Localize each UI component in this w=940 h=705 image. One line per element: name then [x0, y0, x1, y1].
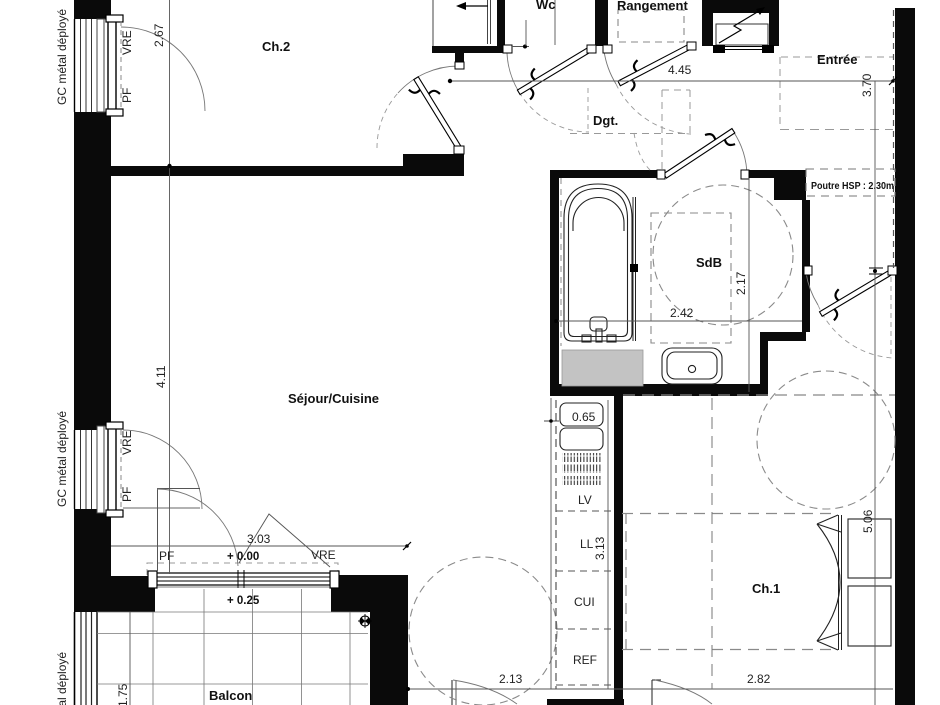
svg-text:SdB: SdB: [696, 255, 722, 270]
svg-text:LL: LL: [580, 537, 594, 551]
svg-text:2.82: 2.82: [747, 672, 771, 686]
svg-text:VRE: VRE: [311, 548, 336, 562]
svg-text:Séjour/Cuisine: Séjour/Cuisine: [288, 391, 379, 406]
svg-text:PF: PF: [120, 487, 134, 502]
svg-text:Dgt.: Dgt.: [593, 113, 618, 128]
svg-text:0.65: 0.65: [572, 410, 596, 424]
svg-text:GC métal déployé: GC métal déployé: [55, 411, 69, 507]
svg-text:5.06: 5.06: [861, 509, 875, 533]
svg-text:VRE: VRE: [120, 30, 134, 55]
svg-text:+ 0.25: + 0.25: [227, 595, 260, 607]
svg-text:3.03: 3.03: [247, 532, 271, 546]
svg-text:4.11: 4.11: [154, 365, 168, 388]
svg-text:Rangement: Rangement: [617, 0, 688, 13]
svg-text:1.75: 1.75: [116, 683, 130, 705]
svg-text:LV: LV: [578, 493, 592, 507]
svg-text:PF: PF: [120, 88, 134, 103]
svg-text:VRE: VRE: [120, 430, 134, 455]
svg-text:Ch.1: Ch.1: [752, 581, 780, 596]
svg-text:3.70: 3.70: [860, 73, 874, 97]
svg-text:Balcon: Balcon: [209, 688, 252, 703]
svg-text:Poutre HSP : 2.30m: Poutre HSP : 2.30m: [811, 180, 894, 192]
svg-text:4.45: 4.45: [668, 63, 692, 77]
svg-text:3.13: 3.13: [593, 536, 607, 560]
svg-text:Entrée: Entrée: [817, 52, 857, 67]
svg-text:2.13: 2.13: [499, 672, 523, 686]
svg-text:2.42: 2.42: [670, 306, 694, 320]
svg-text:+ 0.00: + 0.00: [227, 551, 259, 563]
svg-text:GC métal déployé: GC métal déployé: [55, 652, 69, 705]
svg-text:Ch.2: Ch.2: [262, 39, 290, 54]
svg-text:Wc: Wc: [536, 0, 556, 12]
svg-text:REF: REF: [573, 653, 597, 667]
svg-text:PF: PF: [159, 549, 174, 563]
svg-text:CUI: CUI: [574, 595, 595, 609]
svg-text:2.67: 2.67: [152, 23, 166, 47]
svg-text:GC métal déployé: GC métal déployé: [55, 9, 69, 105]
svg-text:2.17: 2.17: [734, 271, 748, 295]
